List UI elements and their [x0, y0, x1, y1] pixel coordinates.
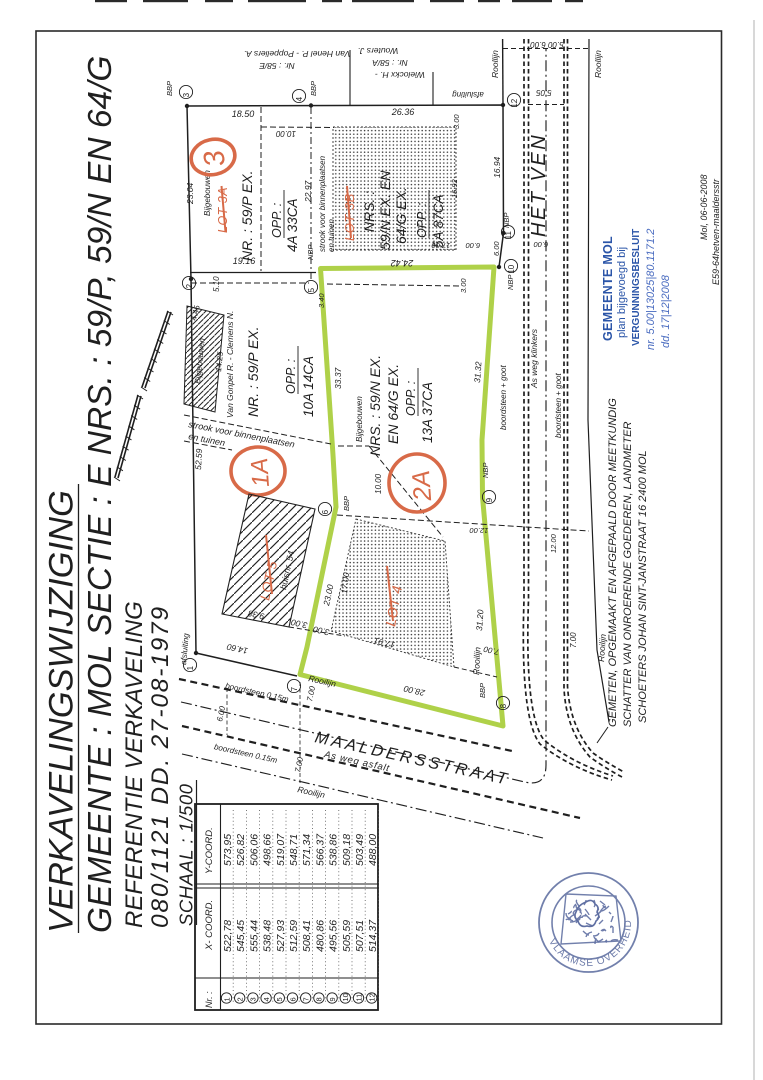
svg-text:566,37: 566,37 — [314, 833, 326, 866]
svg-text:9: 9 — [328, 997, 337, 1001]
svg-text:8: 8 — [315, 997, 324, 1001]
svg-text:1: 1 — [222, 997, 231, 1001]
svg-text:538,86: 538,86 — [328, 834, 340, 866]
svg-text:NRS. :: NRS. : — [361, 191, 377, 232]
svg-text:NBP: NBP — [506, 275, 515, 290]
svg-text:24.42: 24.42 — [391, 258, 415, 268]
svg-text:545,45: 545,45 — [235, 920, 247, 952]
svg-text:080/1121 DD. 27-08-1979: 080/1121 DD. 27-08-1979 — [147, 605, 174, 928]
svg-text:13A 37CA: 13A 37CA — [420, 382, 435, 443]
svg-text:Mol, 06-06-2008: Mol, 06-06-2008 — [699, 174, 709, 240]
svg-text:BBP: BBP — [342, 496, 351, 511]
svg-text:BBP: BBP — [478, 683, 487, 698]
svg-text:Y-COORD.: Y-COORD. — [204, 827, 215, 874]
svg-text:Nr. : 58/E: Nr. : 58/E — [259, 61, 295, 71]
svg-text:NR. : 59/P EX.: NR. : 59/P EX. — [239, 170, 255, 261]
svg-text:OPP. :: OPP. : — [284, 359, 298, 394]
svg-text:Wielockx H. -: Wielockx H. - — [375, 70, 425, 80]
svg-text:Bijgebouwen: Bijgebouwen — [355, 396, 364, 442]
svg-text:plan bijgevoegd bij: plan bijgevoegd bij — [616, 247, 628, 338]
svg-text:5.05: 5.05 — [536, 88, 552, 97]
svg-text:512,59: 512,59 — [288, 920, 300, 952]
svg-text:505,59: 505,59 — [341, 920, 353, 952]
svg-text:527,93: 527,93 — [275, 920, 287, 952]
svg-text:16.94: 16.94 — [492, 156, 502, 178]
svg-text:NR. : 59/P EX.: NR. : 59/P EX. — [245, 326, 261, 417]
svg-text:OPP. :: OPP. : — [415, 203, 429, 238]
svg-text:12: 12 — [510, 98, 519, 107]
svg-text:Rooilijn: Rooilijn — [471, 646, 482, 675]
svg-text:548,71: 548,71 — [288, 834, 300, 866]
svg-text:10A 14CA: 10A 14CA — [301, 356, 316, 417]
svg-text:REFERENTIE VERKAVELING: REFERENTIE VERKAVELING — [121, 601, 148, 928]
svg-text:12.00: 12.00 — [549, 533, 558, 553]
svg-text:GEMEENTE MOL: GEMEENTE MOL — [601, 236, 615, 341]
svg-text:GEMETEN, OPGEMAAKT EN AFGEPAAL: GEMETEN, OPGEMAAKT EN AFGEPAALD DOOR MEE… — [607, 398, 619, 727]
svg-text:As weg klinkers: As weg klinkers — [529, 328, 539, 389]
svg-text:10.00: 10.00 — [275, 129, 296, 138]
svg-text:Nr. :: Nr. : — [204, 991, 214, 1008]
svg-text:10: 10 — [341, 993, 350, 1001]
svg-text:7: 7 — [302, 997, 311, 1001]
svg-text:Wouters J.: Wouters J. — [358, 46, 399, 56]
svg-text:5: 5 — [275, 997, 284, 1001]
svg-text:555,44: 555,44 — [248, 920, 260, 952]
svg-text:498,66: 498,66 — [262, 834, 274, 866]
svg-text:BBP: BBP — [165, 81, 174, 96]
svg-text:Roollijn: Roollijn — [593, 50, 603, 78]
svg-text:boordsteen + goot: boordsteen + goot — [499, 365, 508, 430]
svg-text:5.10: 5.10 — [212, 276, 221, 292]
svg-text:488,00: 488,00 — [367, 834, 379, 866]
svg-text:Bijgebouwen: Bijgebouwen — [203, 170, 212, 216]
svg-text:Van Henel P. - Poppeliers A.: Van Henel P. - Poppeliers A. — [244, 49, 350, 59]
svg-text:526,82: 526,82 — [235, 834, 247, 866]
svg-text:52.59: 52.59 — [193, 448, 204, 470]
svg-text:522,78: 522,78 — [222, 920, 234, 952]
svg-text:12: 12 — [368, 993, 377, 1001]
svg-text:8: 8 — [499, 703, 508, 708]
svg-text:6.00: 6.00 — [492, 241, 501, 256]
svg-text:519,07: 519,07 — [275, 833, 287, 866]
svg-text:NRS. : 59/N EX.: NRS. : 59/N EX. — [367, 355, 383, 456]
svg-text:3.00: 3.00 — [452, 114, 461, 129]
svg-text:EN 64/G EX.: EN 64/G EX. — [385, 364, 401, 444]
svg-text:E59-64hetven-maaldersstr: E59-64hetven-maaldersstr — [711, 178, 721, 285]
svg-text:538,48: 538,48 — [262, 920, 274, 952]
svg-text:Van Gonpel R. - Clemens N.: Van Gonpel R. - Clemens N. — [225, 311, 235, 418]
svg-text:4: 4 — [295, 96, 304, 101]
svg-text:573,95: 573,95 — [222, 834, 234, 866]
svg-text:10: 10 — [507, 264, 516, 273]
svg-text:2A: 2A — [407, 469, 437, 502]
svg-text:6: 6 — [321, 509, 330, 514]
svg-text:506,06: 506,06 — [248, 834, 260, 866]
svg-text:31.32: 31.32 — [472, 361, 483, 383]
svg-text:17.00: 17.00 — [431, 241, 451, 250]
svg-text:boordsteen + goot: boordsteen + goot — [554, 373, 563, 438]
svg-text:571,34: 571,34 — [301, 834, 313, 866]
svg-text:6: 6 — [288, 997, 297, 1001]
svg-text:dd. 17|12|2008: dd. 17|12|2008 — [660, 274, 672, 348]
svg-text:1A: 1A — [246, 457, 275, 488]
svg-text:503,49: 503,49 — [354, 834, 366, 866]
svg-text:en tuinen: en tuinen — [327, 219, 336, 252]
svg-text:SCHAAL : 1/500: SCHAAL : 1/500 — [176, 783, 197, 926]
svg-text:2: 2 — [185, 283, 194, 288]
svg-text:6.00: 6.00 — [465, 241, 480, 250]
svg-text:514,37: 514,37 — [367, 919, 379, 952]
svg-text:NBP: NBP — [306, 245, 315, 260]
svg-text:strook voor binnenplaatsen: strook voor binnenplaatsen — [318, 155, 327, 252]
svg-text:33.37: 33.37 — [333, 367, 343, 389]
svg-text:507,51: 507,51 — [354, 920, 366, 952]
svg-text:480,86: 480,86 — [314, 920, 326, 952]
svg-text:HET VEN: HET VEN — [528, 133, 550, 237]
svg-text:VERKAVELINGSWIJZIGING: VERKAVELINGSWIJZIGING — [43, 490, 81, 933]
svg-text:Nr. : 58/A: Nr. : 58/A — [372, 58, 408, 68]
svg-text:OPP. :: OPP. : — [270, 203, 284, 238]
svg-text:nr. 5.00|13025|80.1171.2: nr. 5.00|13025|80.1171.2 — [645, 229, 657, 350]
svg-text:7: 7 — [290, 686, 299, 691]
svg-text:NBP: NBP — [502, 213, 511, 228]
svg-text:18.50: 18.50 — [232, 109, 255, 119]
svg-text:10.00: 10.00 — [374, 473, 383, 494]
svg-text:1: 1 — [186, 665, 195, 670]
svg-text:NBP: NBP — [481, 463, 490, 478]
svg-text:7.00: 7.00 — [569, 632, 578, 648]
svg-text:BBP: BBP — [309, 81, 318, 96]
svg-text:5.00 6.00: 5.00 6.00 — [530, 40, 564, 49]
svg-text:GEMEENTE : MOL SECTIE : E: GEMEENTE : MOL SECTIE : E NRS. : 59/P, 5… — [82, 56, 119, 934]
svg-text:4: 4 — [262, 997, 271, 1001]
svg-text:5: 5 — [307, 287, 316, 292]
svg-text:23.04: 23.04 — [185, 182, 195, 205]
svg-text:3: 3 — [182, 92, 191, 97]
svg-text:SCHOETERS JOHAN SINT-JANS: SCHOETERS JOHAN SINT-JANSTRAAT 16 2400 M… — [637, 450, 649, 723]
svg-text:22.97: 22.97 — [303, 180, 313, 203]
svg-text:16.92: 16.92 — [450, 178, 459, 198]
svg-text:64/G EX.: 64/G EX. — [393, 187, 409, 244]
svg-text:X- COORD.: X- COORD. — [204, 900, 215, 951]
svg-text:12.00: 12.00 — [469, 526, 489, 535]
svg-text:4A 33CA: 4A 33CA — [285, 198, 300, 252]
svg-text:509,18: 509,18 — [341, 834, 353, 866]
svg-text:59/N EX. EN: 59/N EX. EN — [377, 170, 393, 250]
svg-text:3.00: 3.00 — [459, 278, 468, 293]
svg-text:VERGUNNINGSBESLUIT: VERGUNNINGSBESLUIT — [631, 229, 642, 346]
svg-text:508,41: 508,41 — [301, 920, 313, 952]
svg-text:31.20: 31.20 — [474, 609, 485, 631]
svg-text:afsluiting: afsluiting — [452, 90, 484, 99]
svg-text:2: 2 — [236, 997, 245, 1001]
svg-text:3: 3 — [249, 997, 258, 1001]
svg-text:OPP. :: OPP. : — [404, 381, 418, 416]
svg-text:9: 9 — [485, 497, 494, 502]
svg-text:SCHATTER VAN ONROERENDE GOEDER: SCHATTER VAN ONROERENDE GOEDEREN, LANDME… — [622, 422, 634, 727]
svg-text:Roollijn: Roollijn — [490, 50, 500, 78]
svg-text:11: 11 — [354, 994, 363, 1002]
svg-text:3.40: 3.40 — [317, 293, 326, 308]
svg-text:5A 87CA: 5A 87CA — [431, 194, 446, 248]
svg-text:495,56: 495,56 — [328, 920, 340, 952]
svg-text:26.36: 26.36 — [391, 107, 415, 117]
